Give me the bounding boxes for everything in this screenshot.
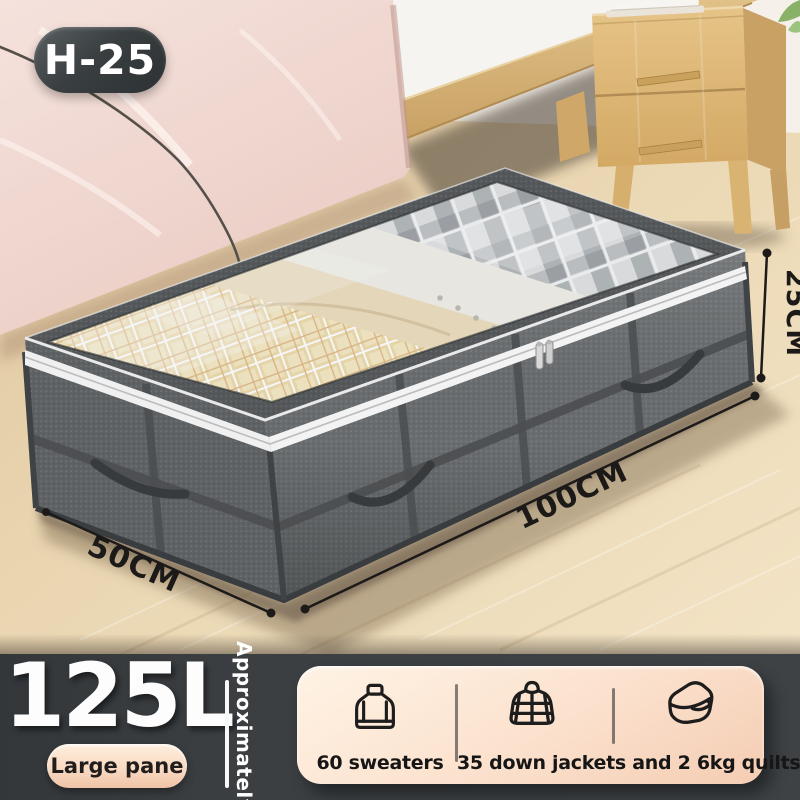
caption-sweaters: 60 sweaters (305, 752, 455, 774)
approximately-label: Approximately (229, 656, 259, 798)
product-image: 25CM 100CM 50CM H-25 125L Large pane App… (0, 0, 800, 800)
capacity-value: 125L (4, 650, 222, 742)
capacity-banner: 125L Large pane Approximately (0, 654, 800, 800)
capacity-tag: Large pane (47, 744, 187, 788)
model-badge-label: H-25 (44, 36, 156, 84)
down-jacket-icon (503, 676, 561, 738)
bed-leg (556, 91, 590, 162)
panel-divider (455, 684, 458, 762)
capacity-tag-label: Large pane (51, 754, 184, 778)
sweater-icon (347, 678, 403, 740)
caption-jackets-quilts: 35 down jackets and 2 6kg quilts (457, 752, 757, 774)
model-badge: H-25 (34, 27, 166, 93)
quilt-icon (659, 676, 719, 734)
panel-divider (612, 688, 615, 744)
svg-text:25CM: 25CM (780, 269, 800, 357)
capacity-info-panel: 60 sweaters 35 down jackets and 2 6kg qu… (297, 666, 764, 784)
